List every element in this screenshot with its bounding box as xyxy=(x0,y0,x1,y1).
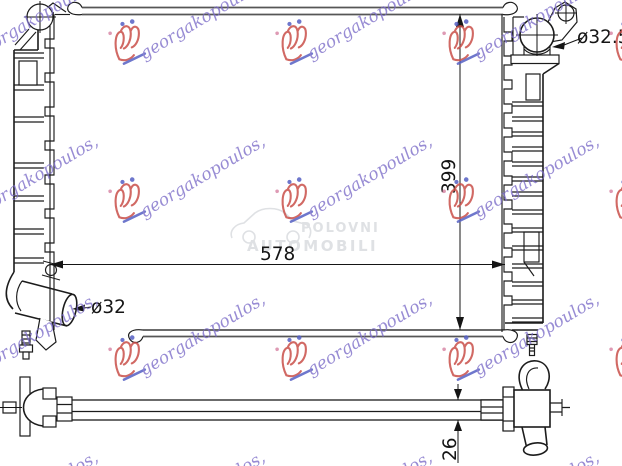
watermark-tile-instance xyxy=(0,0,102,65)
outlet-pipe-opening xyxy=(523,442,548,457)
watermark-tile-instance xyxy=(608,132,622,224)
dim-inlet-label: ø32.5 xyxy=(577,27,622,48)
watermark-tile-instance xyxy=(107,448,269,466)
watermark-tile-instance xyxy=(274,0,436,65)
dim-height-label: 399 xyxy=(439,159,460,194)
dimension-width: 578 xyxy=(50,244,505,269)
spring-clip xyxy=(519,361,549,391)
watermark-tile-instance xyxy=(274,132,436,224)
watermark-tile-instance xyxy=(608,448,622,466)
watermark-tile-instance xyxy=(0,290,102,382)
dim-thickness-label: 26 xyxy=(440,437,461,461)
radiator-technical-drawing: georgakopoulos, POLOVNI AUTOMOBILI xyxy=(0,0,622,466)
watermark-tile-instance xyxy=(274,448,436,466)
background-watermark-line1: POLOVNI xyxy=(301,221,380,236)
dimension-thickness: 26 xyxy=(440,384,462,463)
watermark-tile-instance xyxy=(107,0,269,65)
bottom-view-right-end xyxy=(481,361,570,457)
dim-width-label: 578 xyxy=(260,244,295,265)
watermark-tile-instance xyxy=(441,448,603,466)
watermark-tile-instance xyxy=(0,448,102,466)
bottom-view-left-end xyxy=(0,377,72,436)
watermark-tile-instance xyxy=(608,290,622,382)
watermark-tile-instance xyxy=(274,290,436,382)
watermark-tile-instance xyxy=(107,132,269,224)
